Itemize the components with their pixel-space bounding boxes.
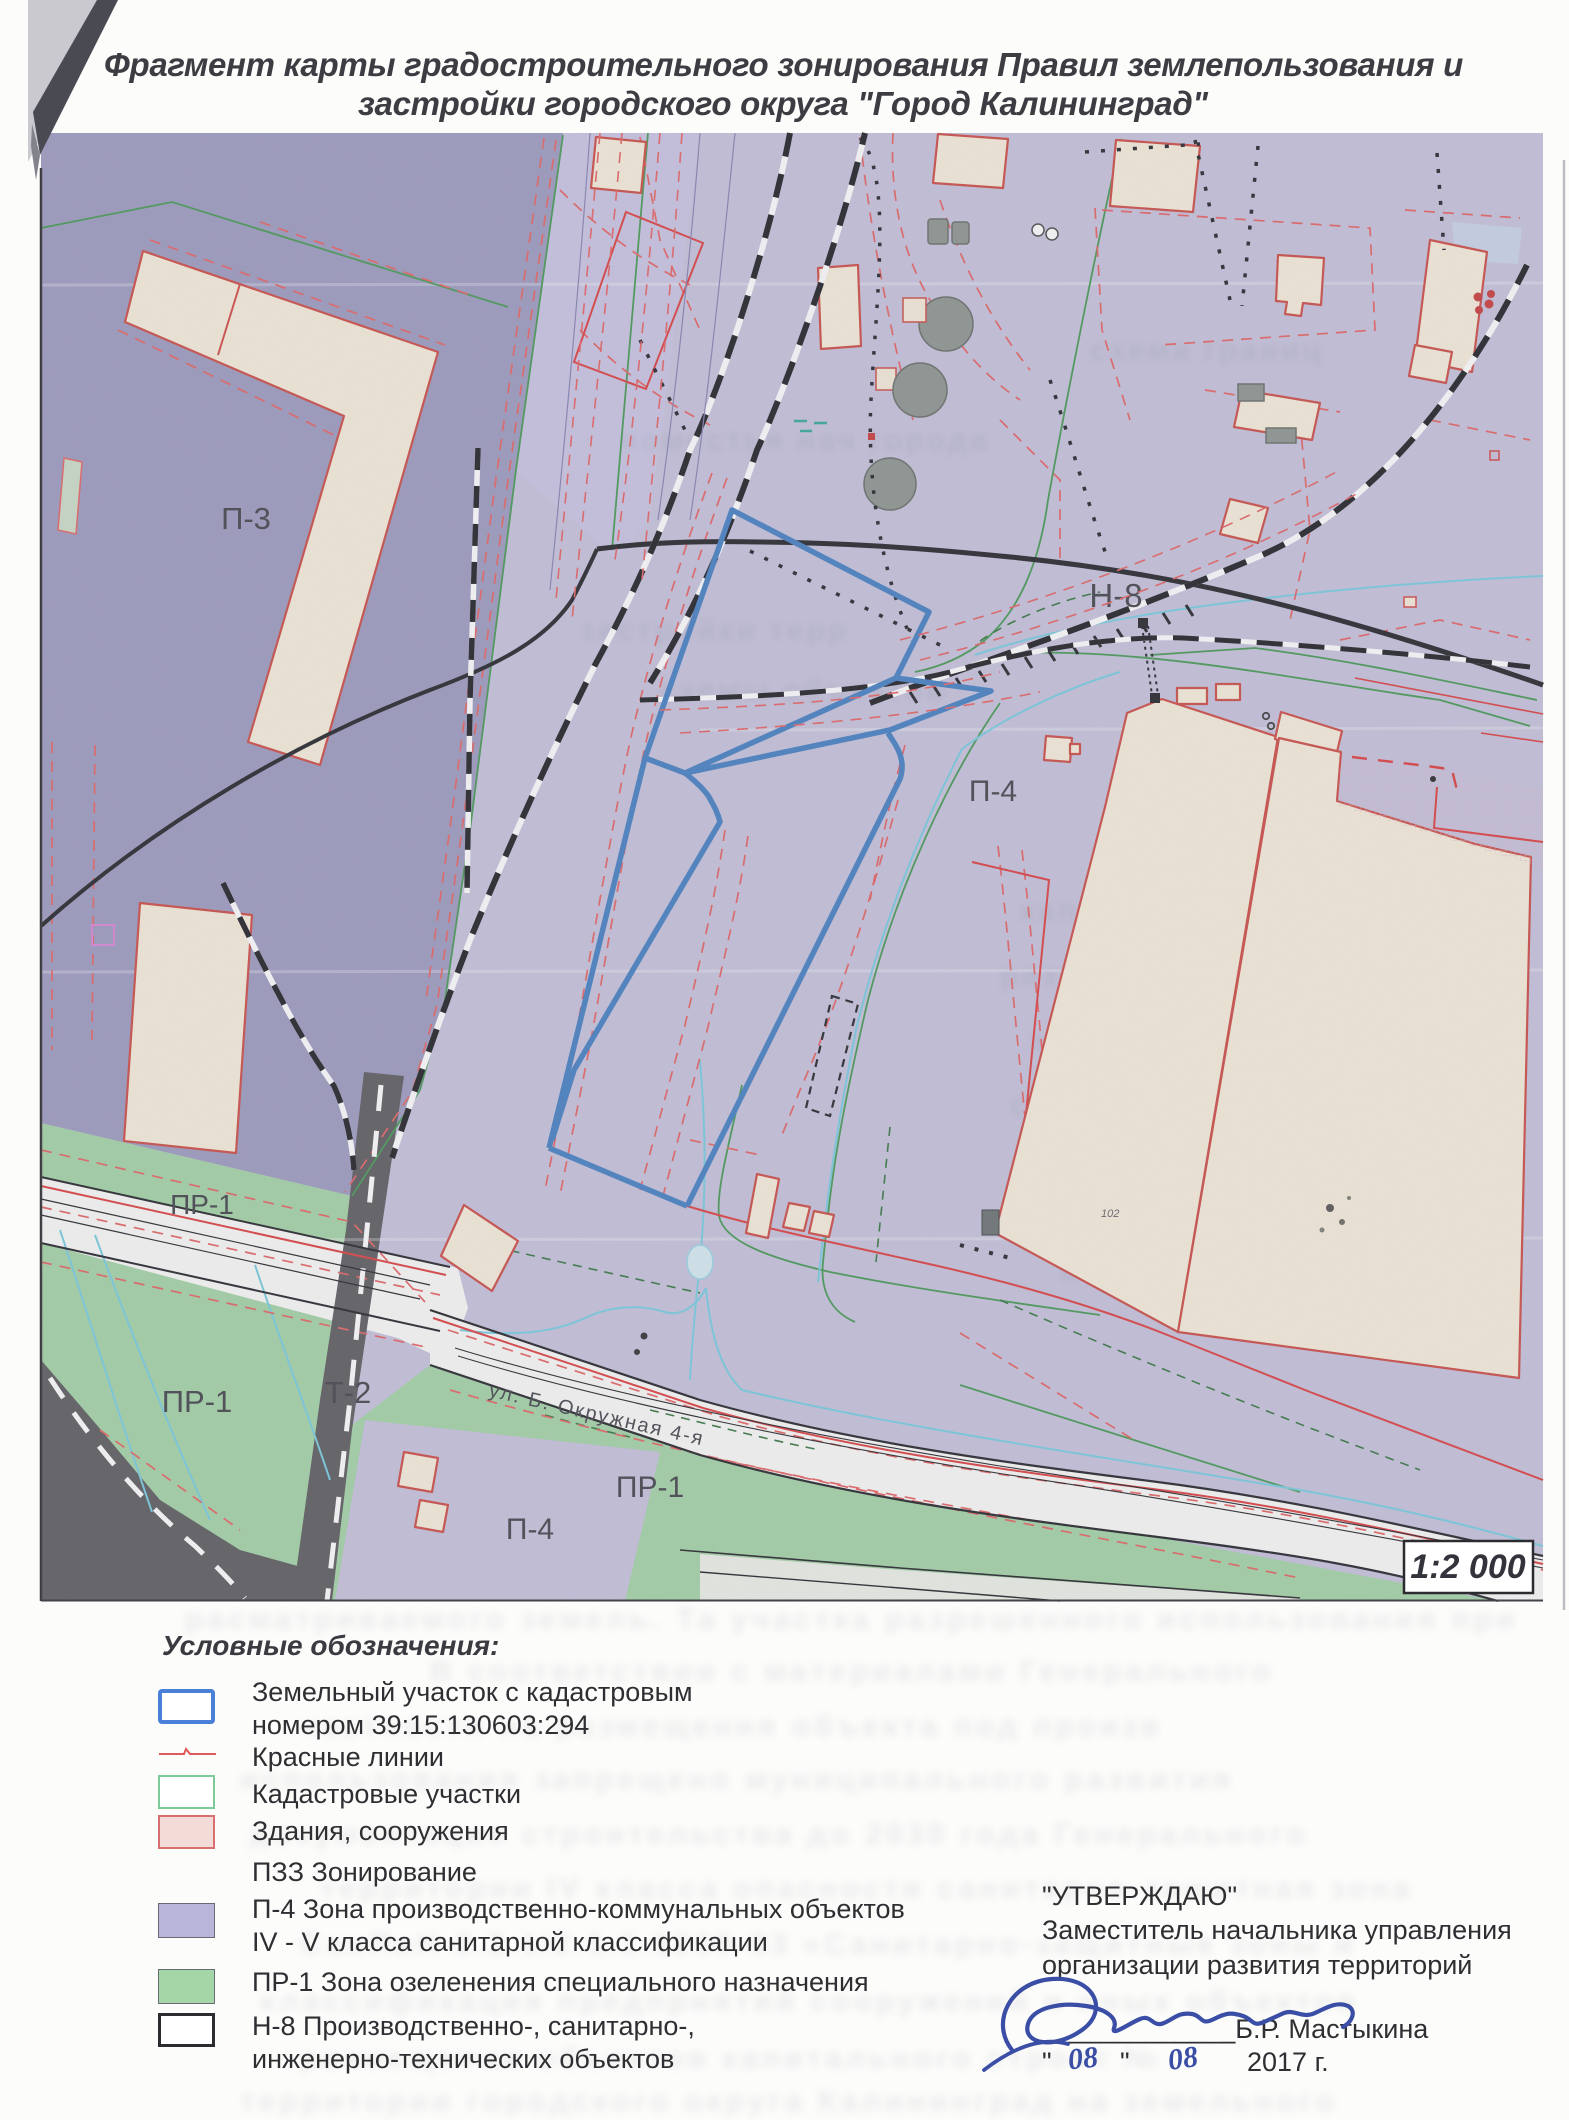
svg-text:1:2 000: 1:2 000: [1410, 1548, 1525, 1586]
